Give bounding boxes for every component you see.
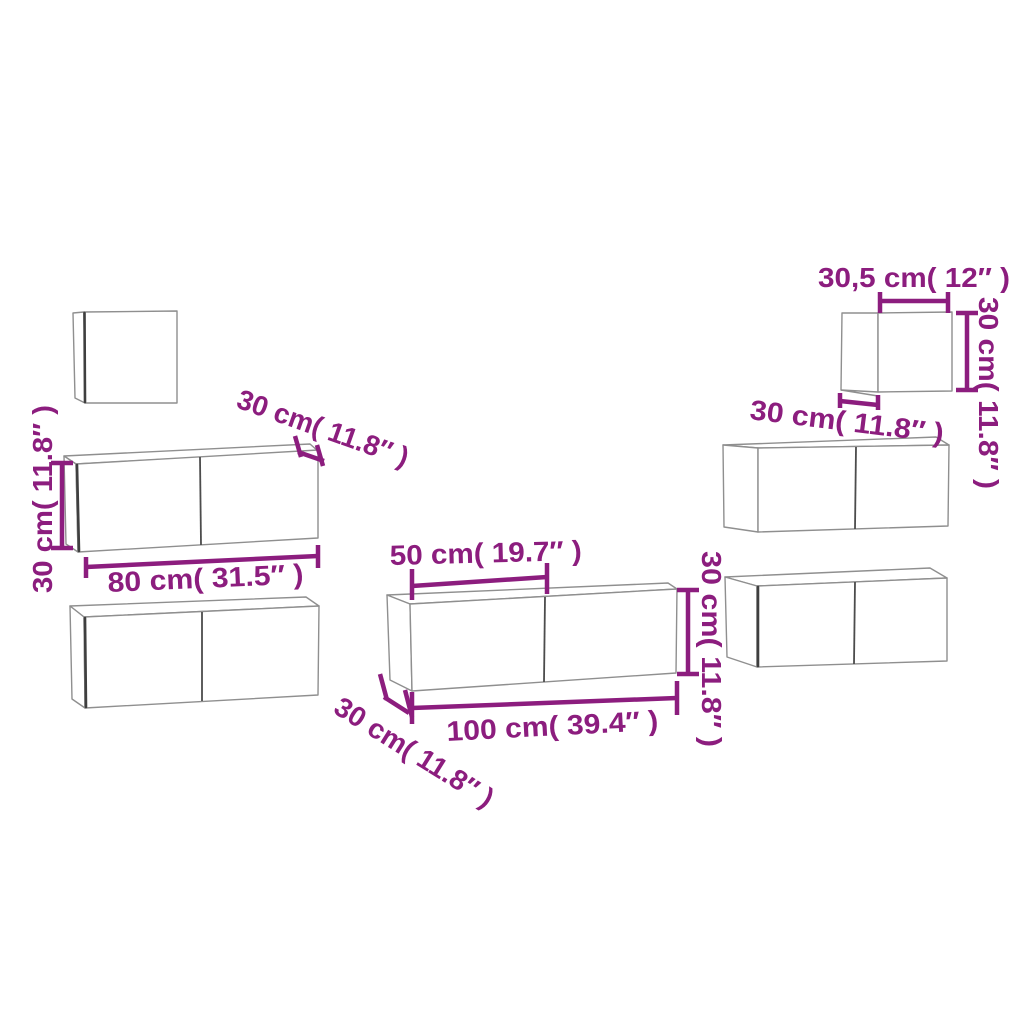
cabinet-front-edge xyxy=(85,618,86,707)
cabinet-door-divider xyxy=(200,457,201,545)
dim-label-height-left: 30 cm( 11.8″ ) xyxy=(27,405,58,593)
cabinet-front-face xyxy=(84,311,177,403)
cabinet-right-lower xyxy=(725,568,947,667)
cabinet-small-top-left xyxy=(73,311,177,403)
cabinet-front-face xyxy=(878,312,952,392)
dim-label-height-top-right: 30 cm( 11.8″ ) xyxy=(973,297,1004,489)
cabinet-100cm-center xyxy=(387,583,677,691)
cabinet-small-top-right xyxy=(841,312,952,396)
cabinet-front-face xyxy=(757,578,947,667)
cabinet-side-panel xyxy=(723,445,758,532)
dim-label-height-center: 30 cm( 11.8″ ) xyxy=(696,551,727,747)
cabinet-front-edge xyxy=(85,313,86,402)
diagram-canvas: 30 cm( 11.8″ ) 30 cm( 11.8″ ) 80 cm( 31.… xyxy=(0,0,1024,1024)
cabinet-side-panel xyxy=(70,606,85,708)
cabinet-front-face xyxy=(76,450,318,552)
cabinet-side-panel xyxy=(73,312,85,403)
cabinet-80cm-upper xyxy=(64,444,318,552)
dim-height-center xyxy=(677,590,699,674)
cabinet-door-divider xyxy=(855,447,856,529)
cabinet-80cm-lower xyxy=(70,597,319,708)
dim-label-door-50: 50 cm( 19.7″ ) xyxy=(389,535,582,571)
cabinet-side-panel xyxy=(841,313,878,392)
dim-label-width-305: 30,5 cm( 12″ ) xyxy=(818,262,1010,293)
cabinet-side-panel xyxy=(387,595,412,691)
dim-label-width-100: 100 cm( 39.4″ ) xyxy=(446,705,659,747)
cabinet-door-divider xyxy=(544,597,545,682)
cabinet-front-face xyxy=(758,445,949,532)
cabinet-side-panel xyxy=(725,577,757,667)
dim-width-305 xyxy=(880,292,948,313)
cabinet-right-upper xyxy=(723,437,949,532)
cabinet-door-divider xyxy=(854,582,855,664)
dimension-diagram-svg: 30 cm( 11.8″ ) 30 cm( 11.8″ ) 80 cm( 31.… xyxy=(0,0,1024,1024)
